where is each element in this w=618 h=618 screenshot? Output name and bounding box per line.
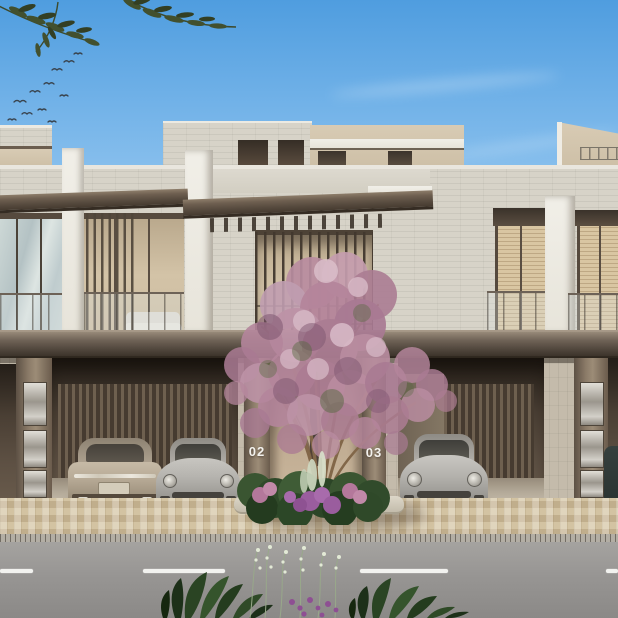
architectural-render: 02 03 [0, 0, 618, 618]
pillar-metal-panel [580, 470, 604, 498]
blossom-tree [200, 243, 470, 525]
right-bay-header [493, 208, 545, 226]
pillar-metal-panel [23, 430, 47, 468]
pillar-metal-panel [23, 470, 47, 498]
rooftop-fascia-line [310, 148, 464, 150]
rear-window [86, 444, 144, 462]
olive-branches [0, 0, 250, 115]
roof-terrace-opening [238, 140, 268, 165]
roof-terrace-opening [278, 140, 304, 165]
bronze-pillar [574, 358, 608, 504]
foreground-leaf-cluster-right [345, 578, 475, 618]
lane-marking-dash [0, 569, 33, 573]
pillar-metal-panel [580, 430, 604, 468]
lane-marking-dash [606, 569, 618, 573]
pillar-metal-panel [23, 382, 47, 426]
entrance-planter [237, 451, 390, 525]
bronze-pillar [16, 358, 52, 504]
rooftop-pilaster-right [557, 122, 562, 170]
taillight-bar [74, 474, 156, 478]
white-pillar [62, 148, 84, 334]
foreground-wild-flowers [240, 540, 350, 618]
rooftop-fascia [310, 139, 464, 148]
headlight [163, 474, 177, 488]
pillar-metal-panel [580, 382, 604, 426]
dark-car-partial [604, 446, 618, 506]
tree-blossoms [224, 252, 457, 459]
lane-marking-dash [360, 569, 448, 573]
roof-terrace-railing [580, 147, 618, 160]
right-bay-header [575, 210, 618, 226]
